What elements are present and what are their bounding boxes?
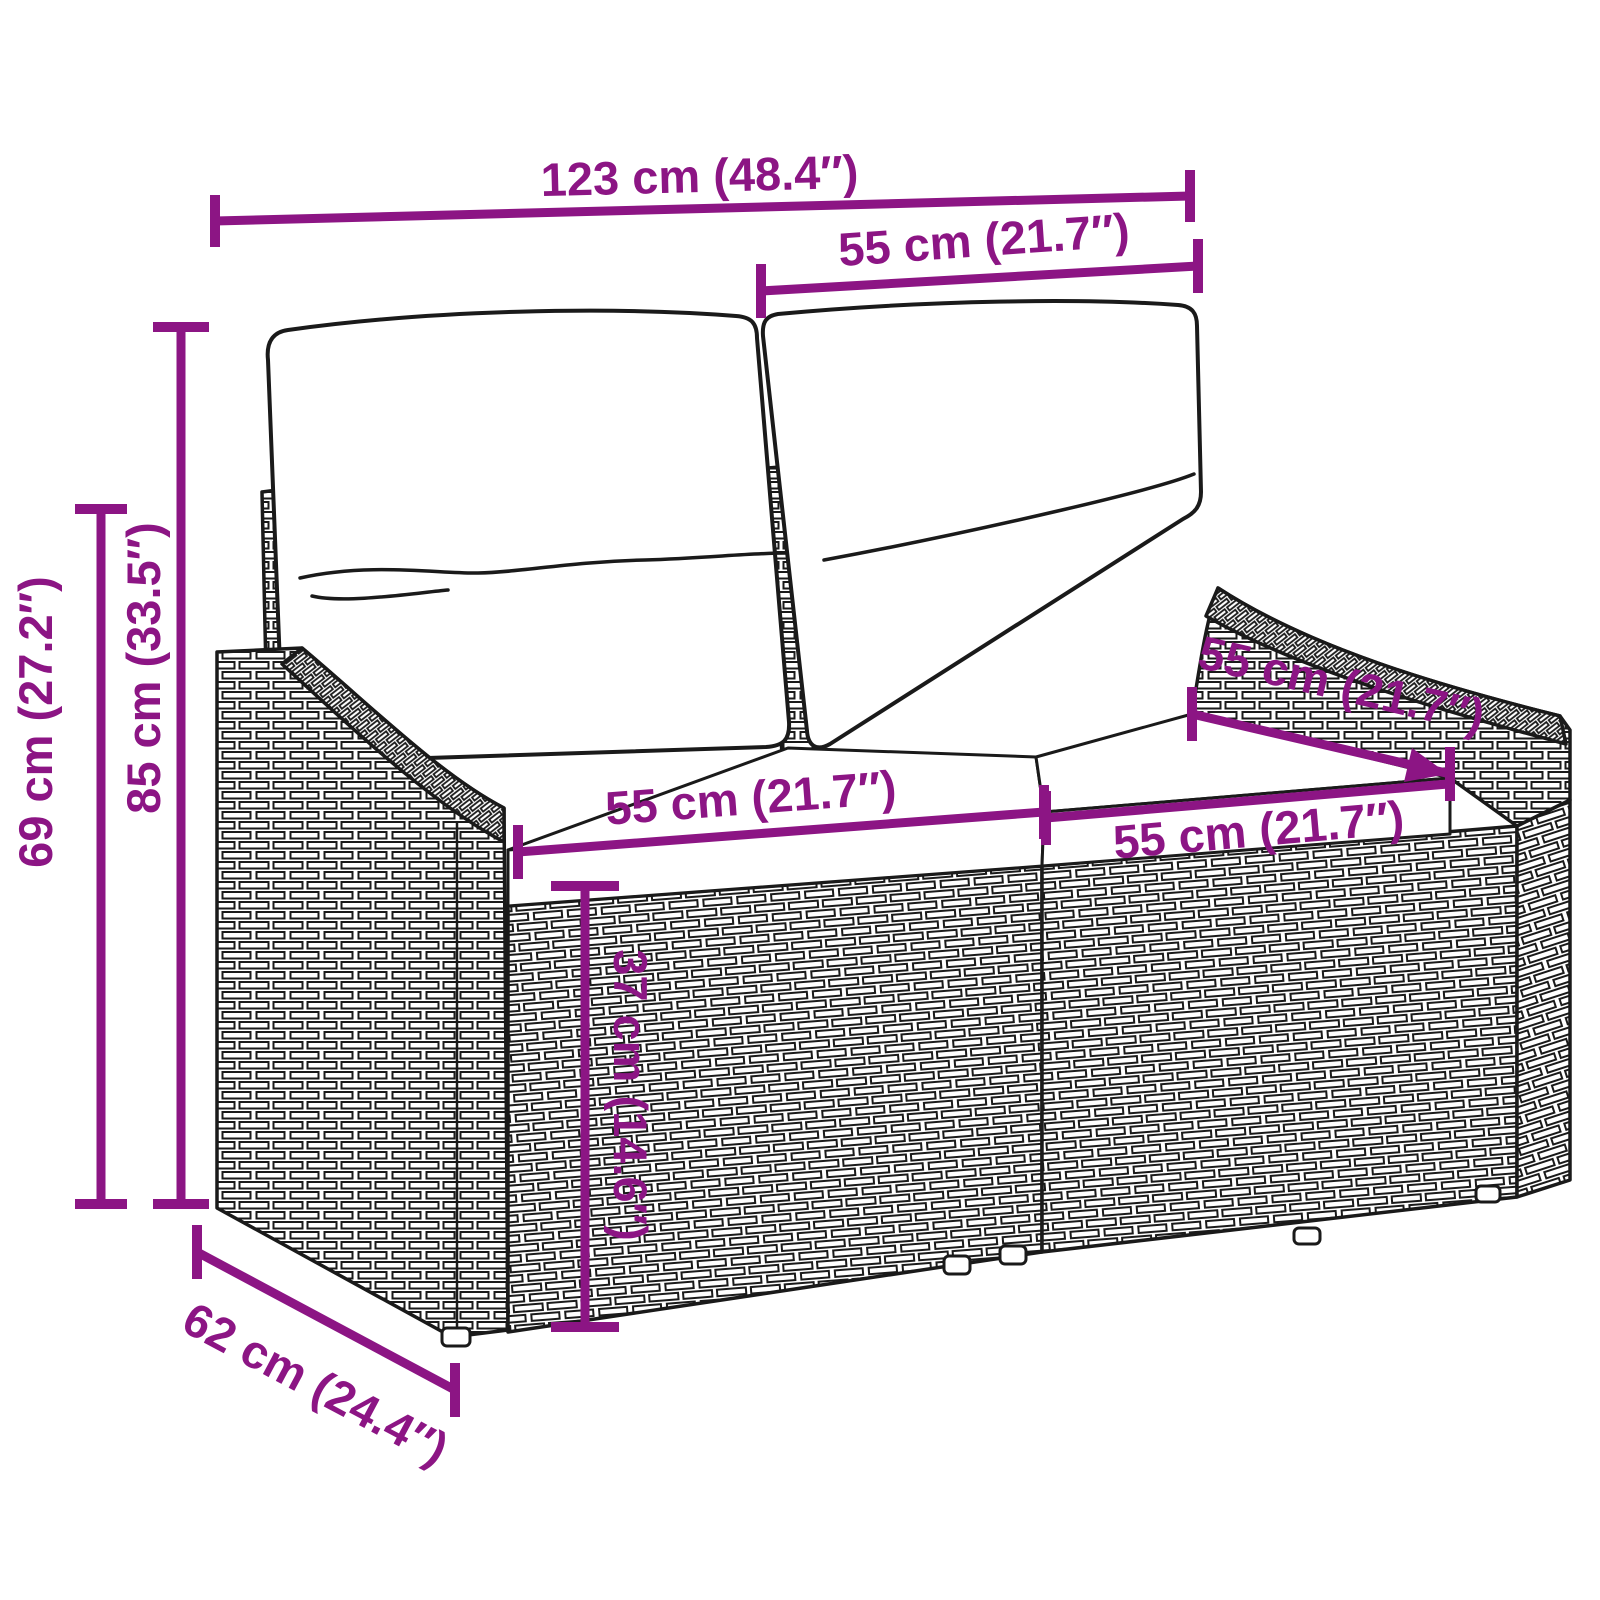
sofa-foot [1476,1186,1500,1202]
dimension-diagram: 123 cm (48.4″) 55 cm (21.7″) 85 cm (33.5… [0,0,1600,1600]
sofa-foot [442,1328,470,1346]
overall-width-label: 123 cm (48.4″) [540,145,859,206]
base-front-right [1042,826,1517,1252]
sofa-foot [944,1256,970,1274]
back-cushion-right [763,301,1201,747]
sofa-dimension-drawing: 123 cm (48.4″) 55 cm (21.7″) 85 cm (33.5… [0,0,1600,1600]
backrest-width-label: 55 cm (21.7″) [837,203,1132,276]
dimension-base-height: 69 cm (27.2″) [9,509,127,1204]
seat-height-label: 37 cm (14.6″) [604,949,657,1241]
base-height-label: 69 cm (27.2″) [9,576,62,868]
sofa-foot [1294,1228,1320,1244]
dimension-overall-height: 85 cm (33.5″) [117,327,209,1204]
base-side-right [1517,800,1570,1197]
sofa-foot [1000,1246,1026,1264]
dim-line [761,266,1198,291]
overall-height-label: 85 cm (33.5″) [117,522,170,814]
